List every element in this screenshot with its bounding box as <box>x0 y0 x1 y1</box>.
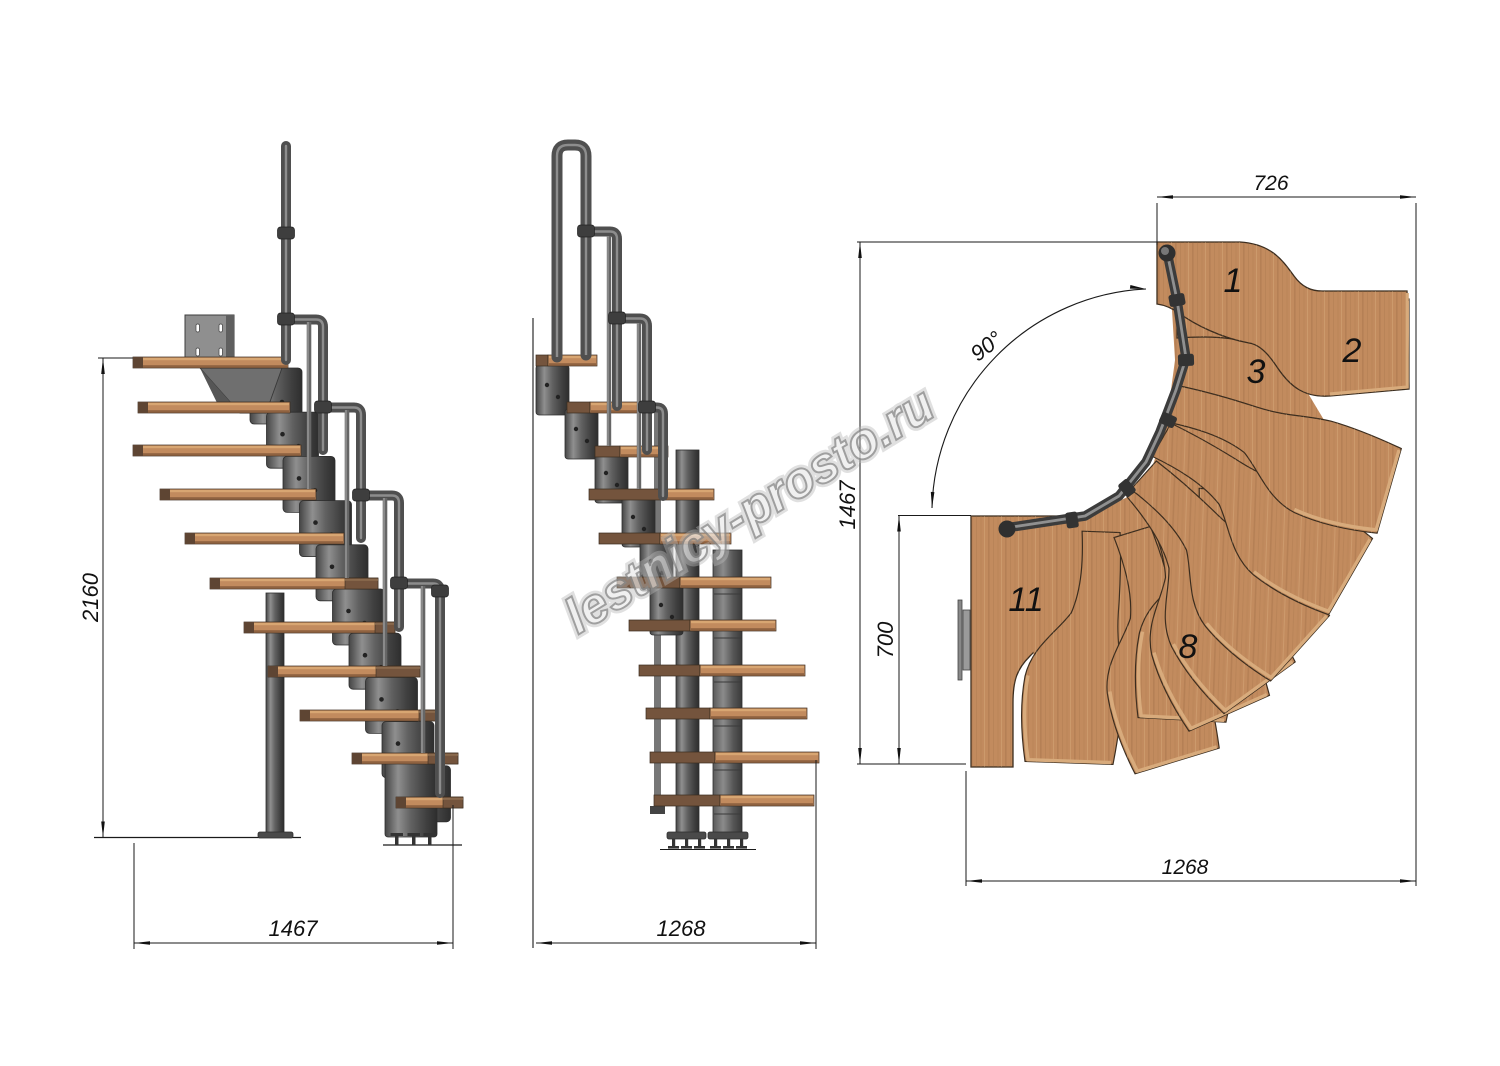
svg-text:11: 11 <box>1008 581 1043 619</box>
svg-text:726: 726 <box>1253 172 1288 195</box>
svg-text:1268: 1268 <box>1162 856 1209 879</box>
svg-text:1268: 1268 <box>657 916 707 941</box>
svg-text:8: 8 <box>1179 628 1198 666</box>
svg-text:3: 3 <box>1247 353 1266 391</box>
svg-text:2: 2 <box>1342 332 1362 370</box>
svg-text:2160: 2160 <box>78 572 103 623</box>
svg-text:1467: 1467 <box>269 916 319 941</box>
svg-text:700: 700 <box>873 621 898 658</box>
svg-text:1: 1 <box>1224 262 1243 300</box>
